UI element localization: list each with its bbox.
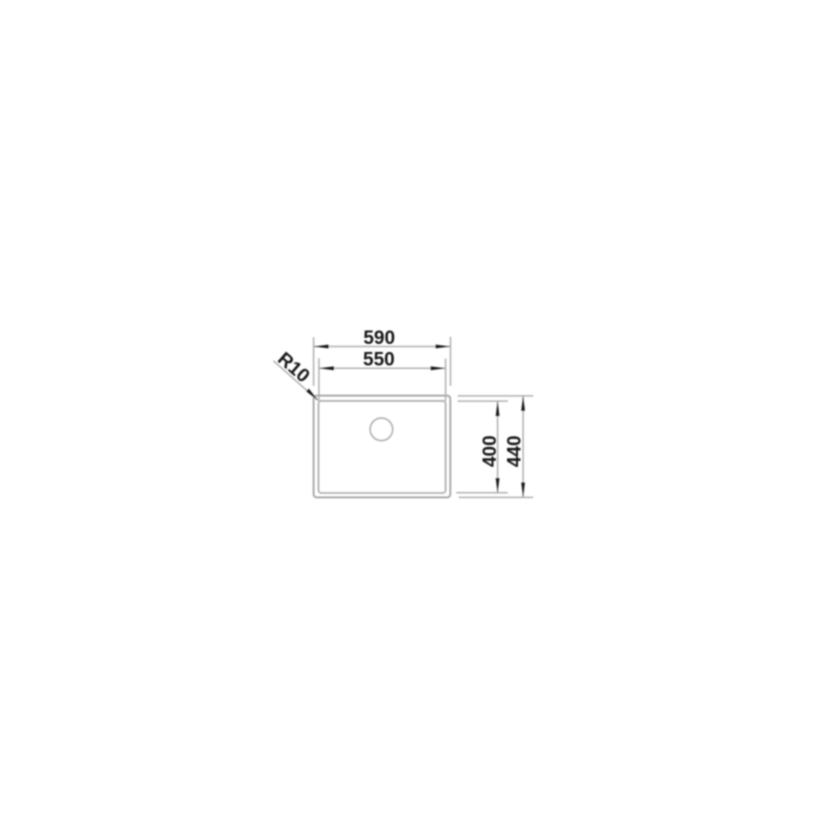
svg-text:550: 550 [363, 350, 395, 371]
svg-text:R10: R10 [273, 349, 313, 388]
svg-text:440: 440 [505, 435, 526, 467]
svg-text:590: 590 [363, 328, 395, 349]
svg-text:400: 400 [480, 435, 501, 467]
